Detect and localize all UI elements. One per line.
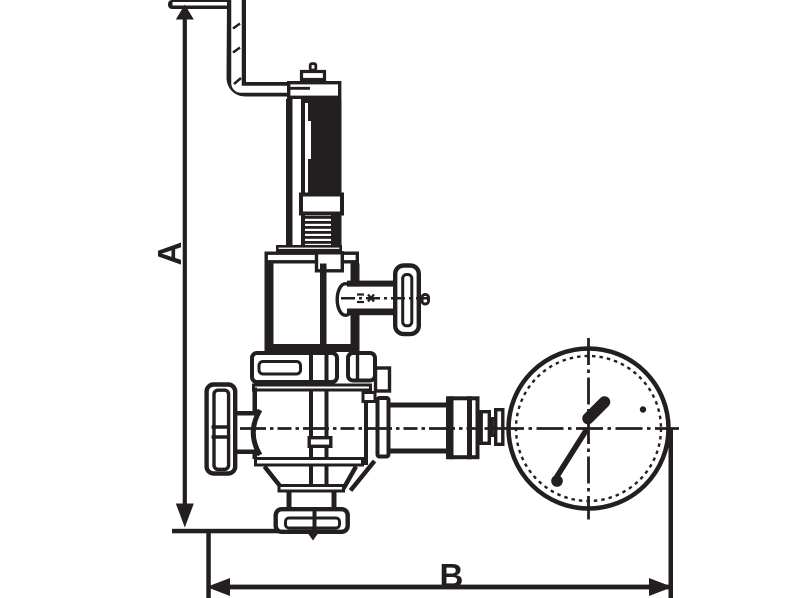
svg-text:B: B bbox=[440, 557, 464, 594]
svg-text:A: A bbox=[151, 242, 188, 266]
